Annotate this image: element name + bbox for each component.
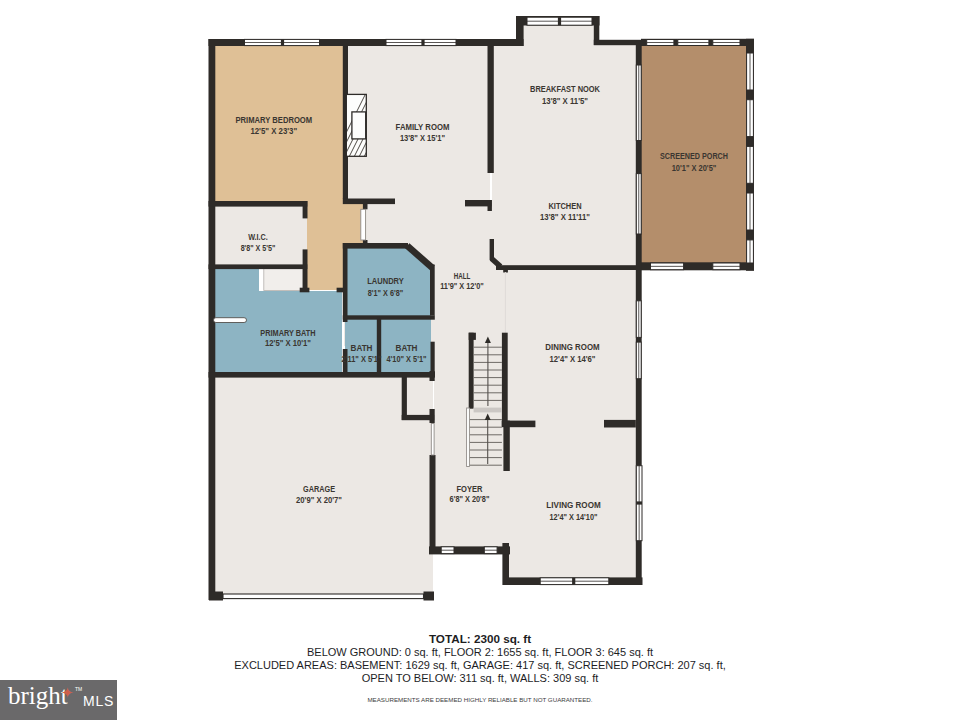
svg-text:20'9" X 20'7": 20'9" X 20'7" xyxy=(296,495,342,505)
svg-text:KITCHEN: KITCHEN xyxy=(548,200,581,211)
svg-text:GARAGE: GARAGE xyxy=(303,483,335,494)
svg-text:12'5" X 10'1": 12'5" X 10'1" xyxy=(265,338,311,348)
svg-text:12'5" X 23'3": 12'5" X 23'3" xyxy=(250,126,297,136)
svg-text:12'4" X 14'10": 12'4" X 14'10" xyxy=(550,512,598,522)
svg-text:FOYER: FOYER xyxy=(457,483,483,494)
svg-text:LIVING ROOM: LIVING ROOM xyxy=(546,499,600,510)
svg-text:PRIMARY BEDROOM: PRIMARY BEDROOM xyxy=(236,114,313,125)
svg-text:HALL: HALL xyxy=(454,270,471,281)
svg-text:13'8" X 15'1": 13'8" X 15'1" xyxy=(400,133,445,143)
svg-text:13'8" X 11'5": 13'8" X 11'5" xyxy=(542,96,588,106)
svg-text:10'1" X 20'5": 10'1" X 20'5" xyxy=(672,163,717,173)
svg-text:8'8" X 5'5": 8'8" X 5'5" xyxy=(241,243,276,253)
svg-text:BATH: BATH xyxy=(396,343,418,353)
svg-text:8'1" X 6'8": 8'1" X 6'8" xyxy=(368,288,403,298)
svg-text:SCREENED PORCH: SCREENED PORCH xyxy=(660,150,728,161)
svg-text:11'9" X 12'0": 11'9" X 12'0" xyxy=(440,281,484,291)
svg-text:2'11" X 5'1": 2'11" X 5'1" xyxy=(342,354,382,364)
svg-text:BREAKFAST NOOK: BREAKFAST NOOK xyxy=(530,83,600,94)
svg-text:12'4" X 14'6": 12'4" X 14'6" xyxy=(550,354,596,364)
svg-text:6'8" X 20'8": 6'8" X 20'8" xyxy=(450,494,490,504)
svg-text:13'8" X 11'11": 13'8" X 11'11" xyxy=(540,212,590,222)
svg-text:DINING ROOM: DINING ROOM xyxy=(545,341,599,352)
svg-text:4'10" X 5'1": 4'10" X 5'1" xyxy=(387,354,427,364)
svg-text:LAUNDRY: LAUNDRY xyxy=(367,275,404,286)
svg-text:FAMILY ROOM: FAMILY ROOM xyxy=(396,121,450,132)
svg-text:W.I.C.: W.I.C. xyxy=(248,231,268,242)
svg-text:BATH: BATH xyxy=(351,343,373,353)
svg-text:PRIMARY BATH: PRIMARY BATH xyxy=(260,327,315,338)
